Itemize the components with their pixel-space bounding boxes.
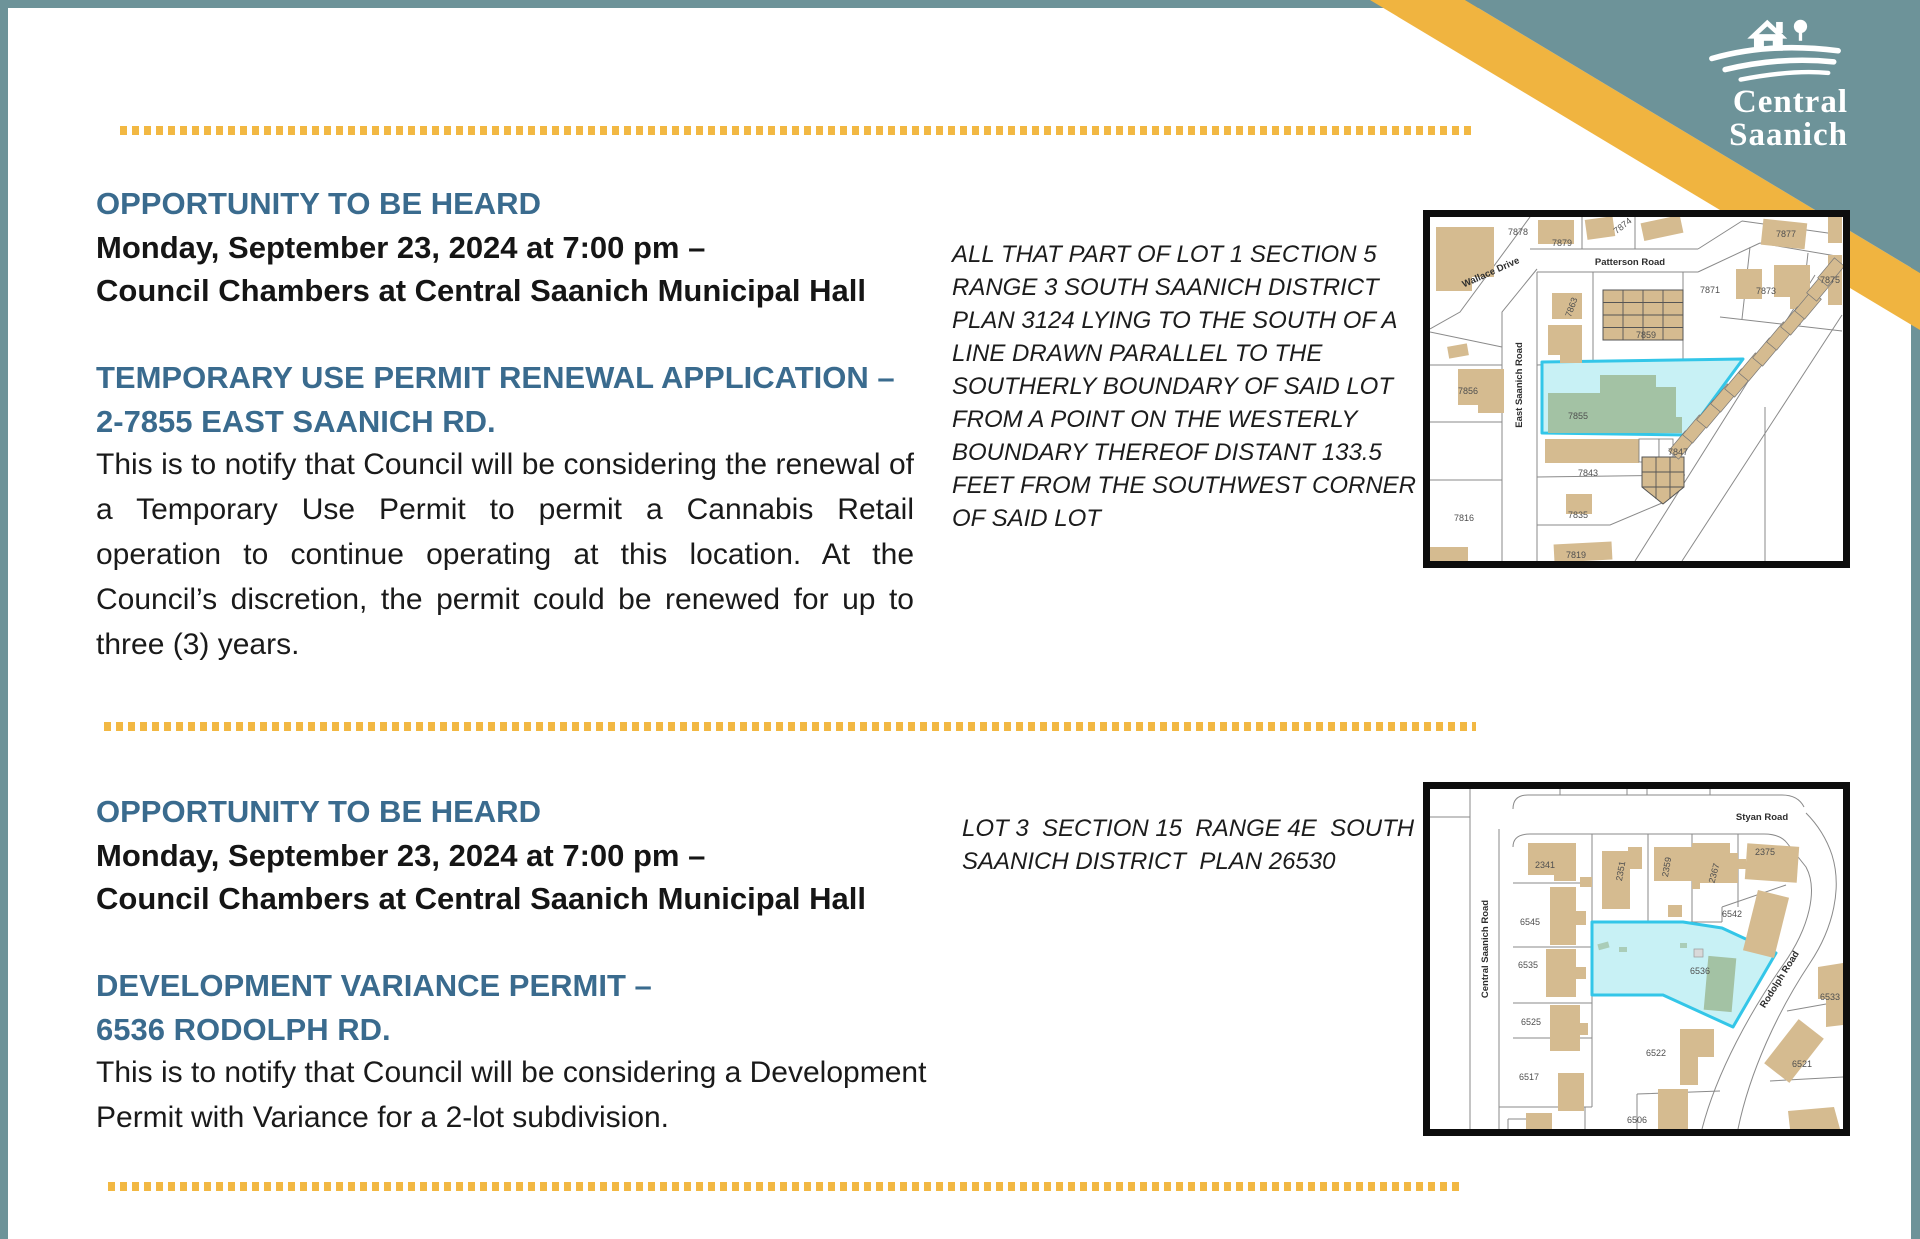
- logo-line1: Central: [1610, 86, 1848, 119]
- notice1-heading: OPPORTUNITY TO BE HEARD: [96, 182, 541, 226]
- notice1-subject: TEMPORARY USE PERMIT RENEWAL APPLICATION…: [96, 356, 895, 444]
- map2-parcel-label: 6521: [1792, 1059, 1812, 1069]
- map1-parcel-label: 7873: [1756, 286, 1776, 296]
- page-border-left: [0, 0, 8, 1239]
- map1-parcel-label: 7847: [1668, 447, 1688, 457]
- map2-parcel-label: 2375: [1755, 847, 1775, 857]
- map1-parcel-label-highlight: 7855: [1568, 411, 1588, 421]
- map2-parcel-label: 2341: [1535, 860, 1555, 870]
- map1-road-label-patterson: Patterson Road: [1595, 257, 1665, 268]
- map2-parcel-label: 6525: [1521, 1017, 1541, 1027]
- map1-parcel-label: 7816: [1454, 513, 1474, 523]
- map1-parcel-label: 7819: [1566, 550, 1586, 560]
- notice2-location: Council Chambers at Central Saanich Muni…: [96, 877, 866, 921]
- notice1-date: Monday, September 23, 2024 at 7:00 pm –: [96, 226, 705, 270]
- logo-wordmark: Central Saanich: [1610, 86, 1848, 152]
- map1-road-label-east-saanich: East Saanich Road: [1514, 342, 1525, 428]
- map2-parcel-label: 6545: [1520, 917, 1540, 927]
- notice2-legal-description: LOT 3 SECTION 15 RANGE 4E SOUTH SAANICH …: [962, 812, 1432, 878]
- map2-parcel-label: 6533: [1820, 992, 1840, 1002]
- map2-road-label-styan: Styan Road: [1736, 812, 1788, 823]
- map2-road-label-central-saanich: Central Saanich Road: [1480, 900, 1491, 998]
- map2-parcel-label: 6506: [1627, 1115, 1647, 1125]
- map1-parcel-label: 7843: [1578, 468, 1598, 478]
- dotted-divider-top: [120, 126, 1472, 135]
- map1-parcel-label: 7859: [1636, 330, 1656, 340]
- notice-page: Central Saanich OPPORTUNITY TO BE HEARD …: [0, 0, 1920, 1239]
- notice2-body: This is to notify that Council will be c…: [96, 1050, 966, 1140]
- central-saanich-farm-icon: [1700, 12, 1850, 84]
- map1-parcel-label: 7835: [1568, 510, 1588, 520]
- notice2-date: Monday, September 23, 2024 at 7:00 pm –: [96, 834, 705, 878]
- map2-parcel-label: 6522: [1646, 1048, 1666, 1058]
- notice2-heading: OPPORTUNITY TO BE HEARD: [96, 790, 541, 834]
- notice1-location: Council Chambers at Central Saanich Muni…: [96, 269, 866, 313]
- dotted-divider-bottom: [108, 1182, 1460, 1191]
- map1-parcel-label: 7871: [1700, 285, 1720, 295]
- map2-parcel-label: 6542: [1722, 909, 1742, 919]
- notice1-body: This is to notify that Council will be c…: [96, 442, 914, 667]
- map2-parcel-label: 6535: [1518, 960, 1538, 970]
- map1-parcel-label: 7879: [1552, 238, 1572, 248]
- map1-parcel-label: 7877: [1776, 229, 1796, 239]
- notice1-legal-description: ALL THAT PART OF LOT 1 SECTION 5 RANGE 3…: [952, 238, 1422, 535]
- map-6536-rodolph: 2341 2351 2359 2367 2375 6545 6542 6535 …: [1423, 782, 1850, 1136]
- map1-parcel-label: 7874: [1612, 217, 1634, 236]
- map2-parcel-label-highlight: 6536: [1690, 966, 1710, 976]
- map1-parcel-label: 7875: [1820, 275, 1840, 285]
- notice2-subject: DEVELOPMENT VARIANCE PERMIT – 6536 RODOL…: [96, 964, 652, 1052]
- map2-green-building: [1704, 956, 1737, 1012]
- map1-parcel-label: 7856: [1458, 386, 1478, 396]
- dotted-divider-middle: [104, 722, 1476, 731]
- map-7855-east-saanich: 7878 7879 7874 7877 7871 7873 7875 7863 …: [1423, 210, 1850, 568]
- logo-line2: Saanich: [1610, 119, 1848, 152]
- map2-parcel-label: 6517: [1519, 1072, 1539, 1082]
- map1-parcel-label: 7878: [1508, 227, 1528, 237]
